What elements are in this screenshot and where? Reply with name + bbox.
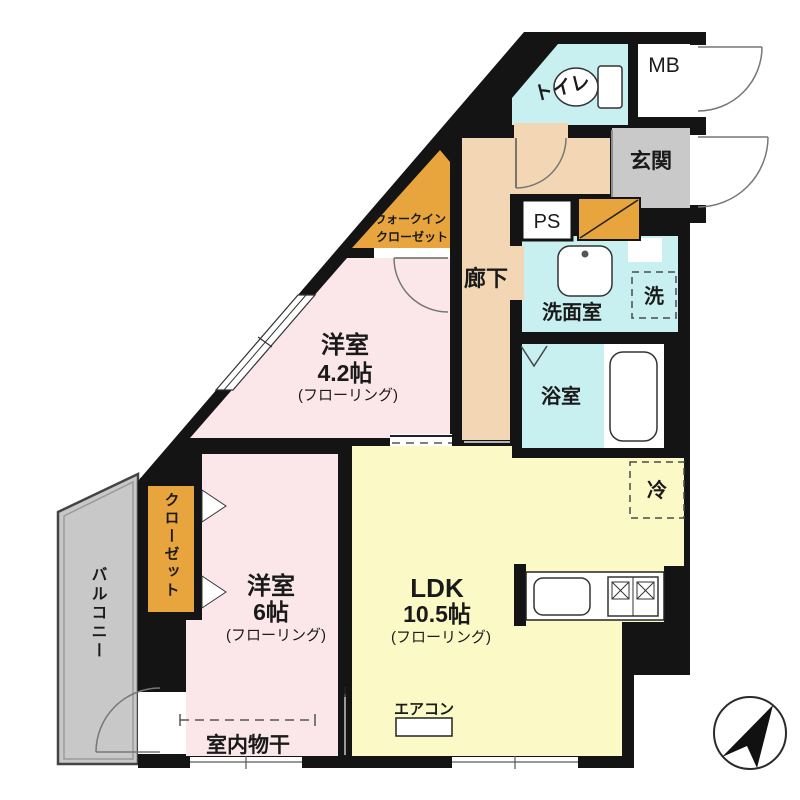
ldk-window (452, 756, 578, 769)
floor-plan-canvas: トイレ MB 玄関 PS ウォークイン クローゼット 廊下 洗面室 洗 浴室 冷… (0, 0, 800, 800)
hallway-label: 廊下 (464, 266, 508, 291)
washroom-niche (628, 238, 662, 262)
stove (608, 577, 658, 616)
toilet-door-opening (514, 123, 568, 139)
wic-label-line1: ウォークイン (374, 212, 446, 226)
bedroom-6-name: 洋室 (247, 572, 295, 600)
bedroom-6-flooring: (フローリング) (226, 627, 326, 644)
wic-opening (374, 248, 450, 258)
balcony-label: バルコニー (89, 566, 108, 661)
kitchen-sink (534, 578, 590, 615)
mb-door-arc (698, 47, 762, 111)
bedroom6-window (190, 756, 302, 769)
washroom-door-opening (508, 246, 524, 300)
compass-icon (714, 697, 786, 769)
ldk-name: LDK (410, 573, 464, 603)
bathroom-label: 浴室 (541, 384, 581, 408)
indoor-drying-label: 室内物干 (206, 733, 290, 757)
refrigerator-label: 冷 (647, 478, 667, 502)
bedroom-42-flooring: (フローリング) (298, 387, 398, 404)
mb-door-opening (690, 45, 707, 117)
ldk-size: 10.5帖 (403, 601, 471, 627)
bedroom-42-size: 4.2帖 (318, 360, 373, 386)
meter-box-label: MB (648, 54, 680, 77)
entrance-label: 玄関 (630, 149, 672, 173)
entrance-door-opening (690, 135, 707, 205)
closet-label: クローゼット (163, 492, 180, 600)
ldk-flooring: (フローリング) (391, 629, 491, 646)
aircon-label: エアコン (394, 701, 454, 718)
kitchen-counter (514, 564, 664, 626)
floor-plan: トイレ MB 玄関 PS ウォークイン クローゼット 廊下 洗面室 洗 浴室 冷… (0, 0, 800, 800)
pipe-space-label: PS (534, 211, 561, 233)
bedroom-6-size: 6帖 (253, 599, 289, 625)
washroom-label: 洗面室 (542, 300, 602, 324)
entrance-door-arc (698, 137, 768, 207)
washer-label: 洗 (644, 285, 664, 308)
balcony-door-opening (138, 692, 186, 754)
sink-faucet (582, 251, 589, 258)
bathtub (610, 352, 657, 441)
aircon-unit (396, 718, 452, 736)
kitchen-left-wall (514, 564, 526, 626)
bedroom-42-name: 洋室 (321, 331, 369, 359)
wic-label-line2: クローゼット (376, 229, 448, 244)
